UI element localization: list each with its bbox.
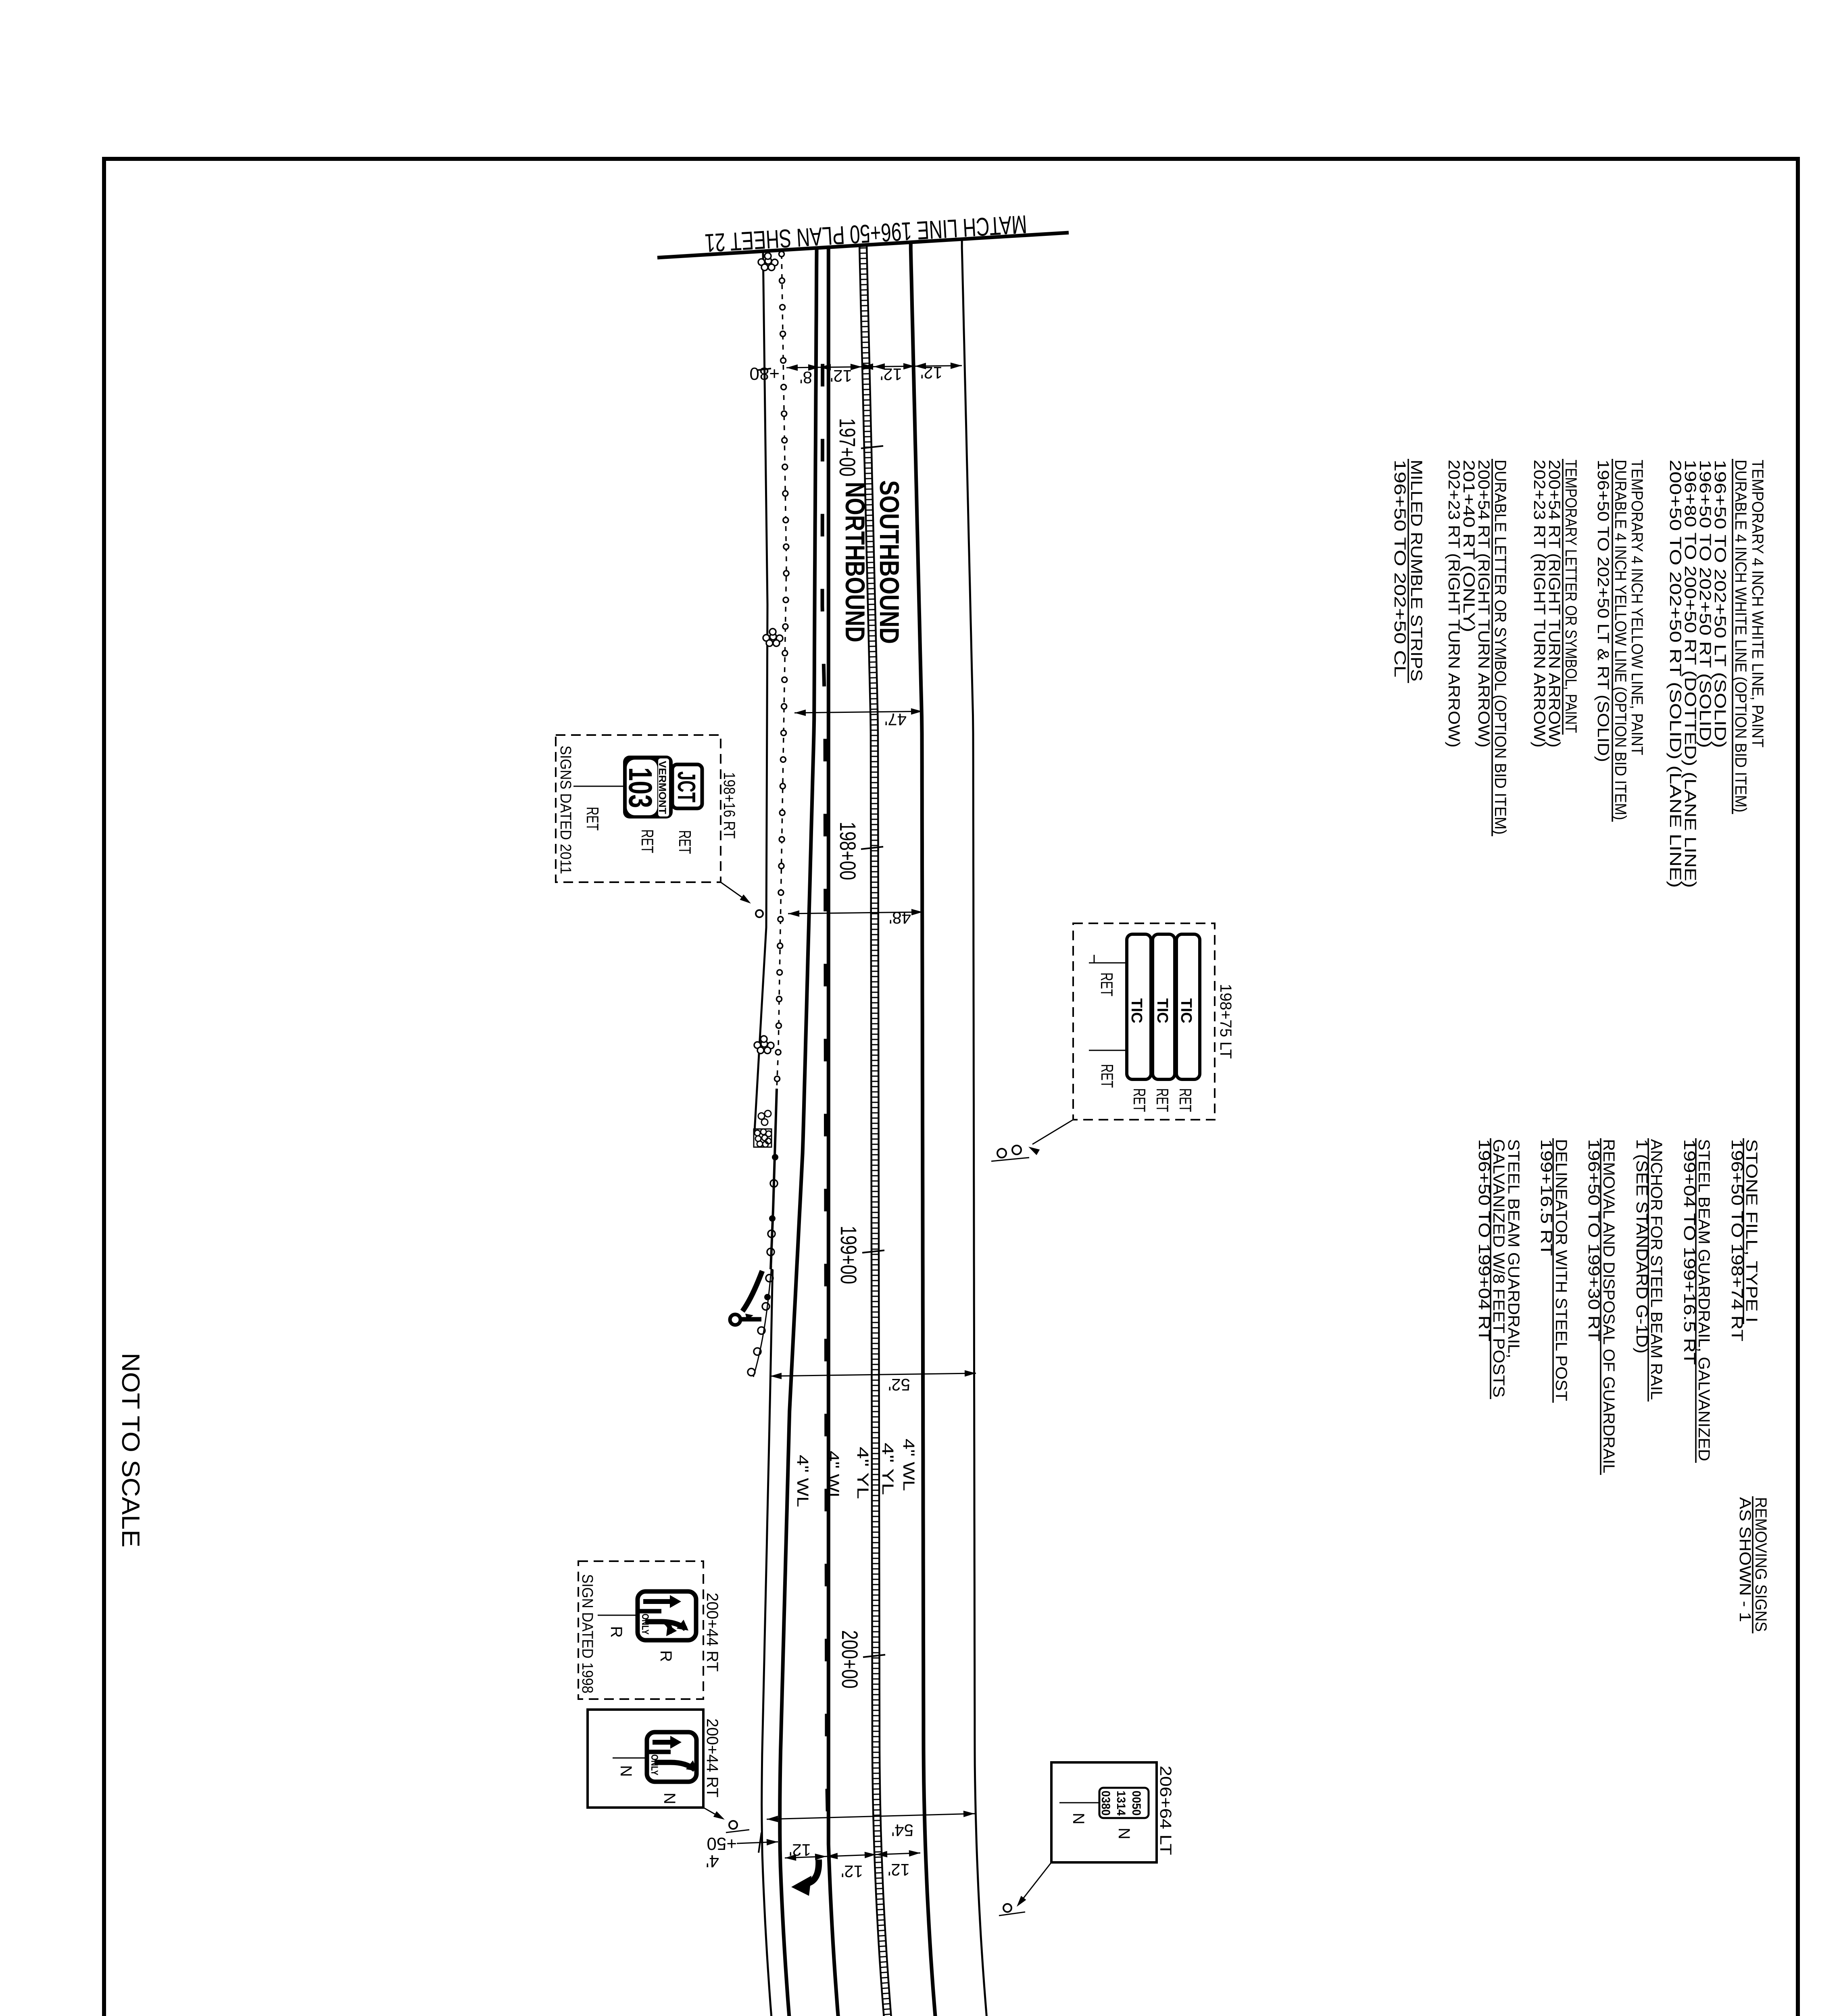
svg-text:196+50 TO 198+74 RT: 196+50 TO 198+74 RT xyxy=(1728,1139,1746,1341)
svg-text:52': 52' xyxy=(888,1375,910,1394)
svg-text:199+00: 199+00 xyxy=(836,1226,861,1284)
svg-text:200+50 TO 202+50 RT (SOLID) (L: 200+50 TO 202+50 RT (SOLID) (LANE LINE) xyxy=(1666,460,1684,888)
svg-text:4" WL: 4" WL xyxy=(824,1451,842,1503)
svg-text:12': 12' xyxy=(830,367,852,385)
svg-text:4" YL: 4" YL xyxy=(879,1443,897,1495)
svg-text:SIGNS DATED 2011: SIGNS DATED 2011 xyxy=(557,746,574,874)
svg-text:N: N xyxy=(1070,1813,1087,1824)
svg-text:TIC: TIC xyxy=(1178,998,1195,1023)
svg-text:200+44 RT: 200+44 RT xyxy=(703,1718,721,1797)
svg-text:200+00: 200+00 xyxy=(837,1630,863,1689)
svg-text:12': 12' xyxy=(789,1841,811,1860)
svg-text:VERMONT: VERMONT xyxy=(657,761,668,814)
svg-text:TEMPORARY 4 INCH WHITE LINE, P: TEMPORARY 4 INCH WHITE LINE, PAINT xyxy=(1749,460,1766,748)
svg-text:R: R xyxy=(657,1650,675,1662)
svg-text:12': 12' xyxy=(920,363,942,382)
svg-text:196+50 TO 199+04 RT: 196+50 TO 199+04 RT xyxy=(1475,1139,1493,1341)
svg-text:ONLY: ONLY xyxy=(649,1754,660,1775)
svg-text:N: N xyxy=(617,1765,635,1777)
svg-text:RET: RET xyxy=(583,807,602,831)
svg-text:12': 12' xyxy=(880,365,902,384)
svg-text:199+16.5 RT: 199+16.5 RT xyxy=(1537,1139,1555,1256)
svg-text:REMOVING SIGNS: REMOVING SIGNS xyxy=(1752,1497,1770,1632)
svg-text:R: R xyxy=(607,1626,625,1638)
svg-text:12': 12' xyxy=(888,1860,910,1879)
svg-text:196+50 TO 199+30 RT: 196+50 TO 199+30 RT xyxy=(1585,1139,1603,1341)
svg-text:+50: +50 xyxy=(707,1834,737,1854)
svg-text:N: N xyxy=(1115,1828,1133,1839)
svg-text:+80: +80 xyxy=(749,364,780,383)
svg-text:RET: RET xyxy=(1097,973,1116,996)
svg-text:12': 12' xyxy=(841,1862,863,1881)
svg-text:DURABLE 4 INCH YELLOW LINE (OP: DURABLE 4 INCH YELLOW LINE (OPTION BID I… xyxy=(1612,460,1629,820)
svg-text:RET: RET xyxy=(1176,1088,1195,1112)
svg-text:103: 103 xyxy=(622,767,659,808)
svg-text:202+23 RT (RIGHT TURN ARROW): 202+23 RT (RIGHT TURN ARROW) xyxy=(1445,460,1463,748)
svg-text:200+44 RT: 200+44 RT xyxy=(703,1593,721,1672)
svg-text:RET: RET xyxy=(676,830,694,854)
svg-text:4" YL: 4" YL xyxy=(854,1447,872,1499)
svg-text:ONLY: ONLY xyxy=(640,1614,651,1635)
svg-text:1 (SEE STANDARD G-1D): 1 (SEE STANDARD G-1D) xyxy=(1633,1139,1651,1354)
svg-text:48': 48' xyxy=(889,908,911,927)
svg-text:4" WL: 4" WL xyxy=(900,1439,917,1491)
svg-text:196+50 TO 202+50 LT & RT (SOLI: 196+50 TO 202+50 LT & RT (SOLID) xyxy=(1594,460,1612,762)
svg-text:SIGN DATED 1998: SIGN DATED 1998 xyxy=(579,1574,596,1693)
svg-text:DURABLE 4 INCH WHITE LINE (OPT: DURABLE 4 INCH WHITE LINE (OPTION BID IT… xyxy=(1732,460,1749,812)
svg-text:8': 8' xyxy=(800,368,812,387)
svg-text:199+04 TO 199+16.5 RT: 199+04 TO 199+16.5 RT xyxy=(1681,1139,1698,1365)
svg-text:198+16 RT: 198+16 RT xyxy=(720,772,738,839)
svg-text:196+50 TO 202+50 CL: 196+50 TO 202+50 CL xyxy=(1391,460,1409,677)
svg-text:AS SHOWN - 1: AS SHOWN - 1 xyxy=(1736,1497,1754,1622)
svg-text:0050: 0050 xyxy=(1130,1791,1143,1816)
svg-text:47': 47' xyxy=(884,710,907,729)
svg-text:206+64 LT: 206+64 LT xyxy=(1157,1766,1174,1855)
svg-text:RET: RET xyxy=(638,829,657,853)
svg-text:N: N xyxy=(661,1793,678,1804)
svg-text:RET: RET xyxy=(1098,1064,1117,1088)
svg-text:198+00: 198+00 xyxy=(835,822,861,880)
svg-text:JCT: JCT xyxy=(672,771,700,802)
svg-text:NORTHBOUND: NORTHBOUND xyxy=(840,482,870,642)
svg-text:198+75 LT: 198+75 LT xyxy=(1217,984,1234,1059)
svg-text:RET: RET xyxy=(1153,1088,1172,1112)
svg-text:MILLED RUMBLE STRIPS: MILLED RUMBLE STRIPS xyxy=(1407,460,1425,681)
svg-text:RET: RET xyxy=(1130,1088,1149,1112)
svg-text:TIC: TIC xyxy=(1128,998,1145,1023)
svg-text:4': 4' xyxy=(706,1851,719,1871)
svg-text:4" WL: 4" WL xyxy=(794,1455,811,1507)
svg-text:TEMPORARY LETTER OR SYMBOL, PA: TEMPORARY LETTER OR SYMBOL, PAINT xyxy=(1562,460,1580,733)
svg-text:TIC: TIC xyxy=(1154,998,1171,1023)
svg-text:SOUTHBOUND: SOUTHBOUND xyxy=(874,480,905,644)
svg-text:TEMPORARY 4 INCH YELLOW LINE,: TEMPORARY 4 INCH YELLOW LINE, PAINT xyxy=(1628,460,1646,755)
svg-text:54': 54' xyxy=(891,1821,913,1840)
svg-text:202+23 RT (RIGHT TURN ARROW): 202+23 RT (RIGHT TURN ARROW) xyxy=(1530,460,1548,748)
svg-text:0380: 0380 xyxy=(1099,1791,1112,1816)
svg-text:197+00: 197+00 xyxy=(835,418,860,477)
svg-text:NOT TO SCALE: NOT TO SCALE xyxy=(117,1353,144,1547)
svg-text:DURABLE LETTER OR SYMBOL (OPTI: DURABLE LETTER OR SYMBOL (OPTION BID ITE… xyxy=(1491,460,1509,835)
svg-text:1314: 1314 xyxy=(1114,1791,1128,1816)
